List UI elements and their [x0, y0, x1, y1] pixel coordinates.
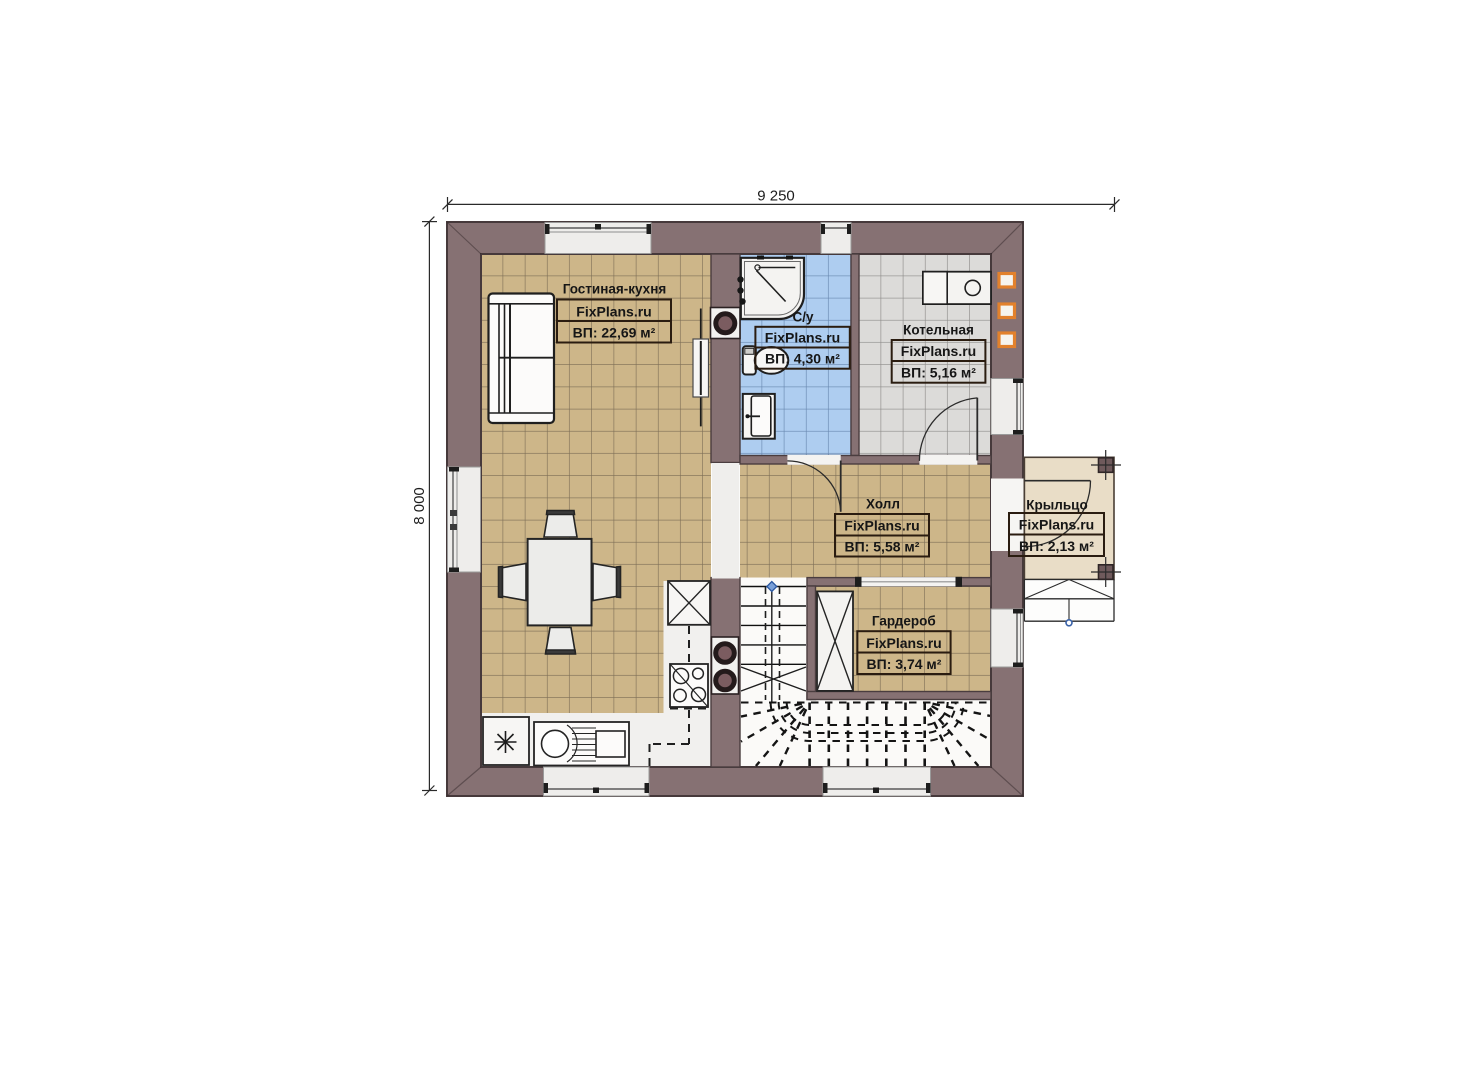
- svg-text:FixPlans.ru: FixPlans.ru: [1019, 517, 1094, 533]
- svg-text:ВП: 4,30 м²: ВП: 4,30 м²: [765, 351, 840, 367]
- svg-text:9 250: 9 250: [757, 188, 795, 205]
- svg-text:FixPlans.ru: FixPlans.ru: [901, 343, 976, 359]
- svg-text:FixPlans.ru: FixPlans.ru: [576, 304, 651, 320]
- svg-text:Холл: Холл: [866, 497, 900, 512]
- svg-text:Гардероб: Гардероб: [872, 614, 936, 629]
- svg-text:С/у: С/у: [792, 310, 814, 325]
- svg-text:Гостиная-кухня: Гостиная-кухня: [563, 282, 666, 297]
- svg-text:Крыльцо: Крыльцо: [1026, 498, 1087, 513]
- svg-text:FixPlans.ru: FixPlans.ru: [844, 518, 919, 534]
- svg-text:Котельная: Котельная: [903, 323, 974, 338]
- svg-text:ВП: 2,13 м²: ВП: 2,13 м²: [1019, 538, 1094, 554]
- svg-text:ВП: 22,69 м²: ВП: 22,69 м²: [573, 325, 656, 341]
- svg-text:ВП: 3,74 м²: ВП: 3,74 м²: [867, 656, 942, 672]
- svg-text:ВП: 5,58 м²: ВП: 5,58 м²: [845, 539, 920, 555]
- svg-text:8 000: 8 000: [411, 487, 428, 525]
- svg-text:ВП: 5,16 м²: ВП: 5,16 м²: [901, 365, 976, 381]
- svg-text:FixPlans.ru: FixPlans.ru: [866, 635, 941, 651]
- svg-text:FixPlans.ru: FixPlans.ru: [765, 330, 840, 346]
